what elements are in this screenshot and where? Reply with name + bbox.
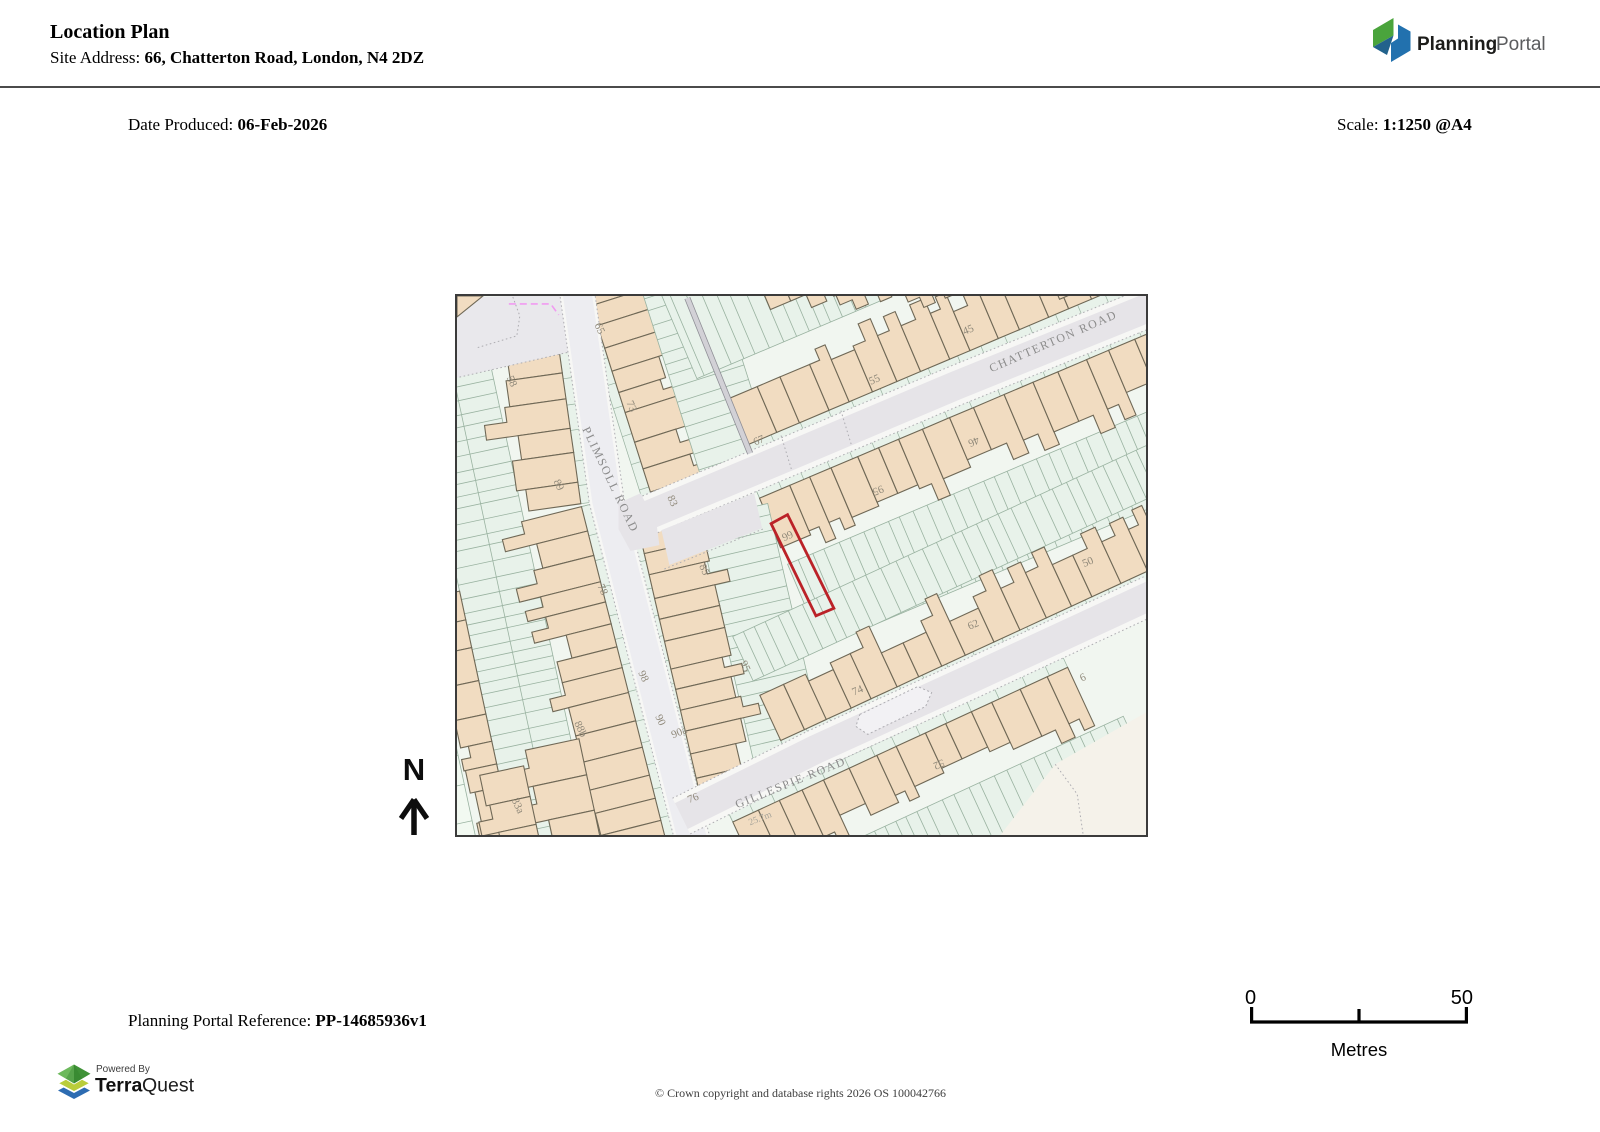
svg-text:0: 0 bbox=[1245, 988, 1256, 1009]
svg-text:Planning: Planning bbox=[1417, 34, 1497, 55]
svg-text:Portal: Portal bbox=[1496, 34, 1546, 55]
svg-text:Metres: Metres bbox=[1331, 1039, 1388, 1060]
svg-text:50: 50 bbox=[1451, 988, 1473, 1009]
svg-text:Quest: Quest bbox=[142, 1075, 195, 1097]
svg-text:Powered By: Powered By bbox=[96, 1064, 150, 1075]
svg-text:Terra: Terra bbox=[95, 1075, 142, 1097]
